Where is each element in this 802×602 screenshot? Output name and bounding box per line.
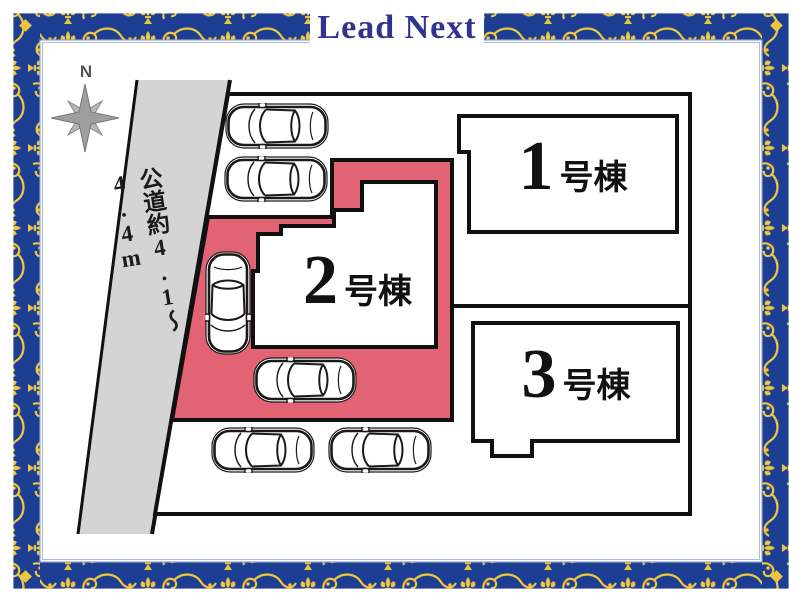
building-3-number: 3: [522, 340, 557, 410]
car-icon: [205, 252, 252, 354]
building-3-suffix: 号棟: [563, 370, 631, 404]
car-icon: [226, 103, 328, 150]
car-icon: [212, 427, 314, 474]
brand-logo: Lead Next: [310, 5, 484, 50]
brand-logo-text: Lead Next: [317, 9, 476, 47]
building-2-suffix: 号棟: [344, 276, 412, 310]
car-icon: [254, 357, 356, 404]
building-3-label: 3 号棟: [473, 340, 679, 410]
compass-north-label: N: [74, 62, 98, 82]
building-1-label: 1 号棟: [464, 132, 682, 202]
car-icon: [225, 156, 327, 203]
building-1-number: 1: [519, 132, 554, 202]
car-icon: [329, 427, 431, 474]
building-2-number: 2: [303, 246, 338, 316]
compass-icon: [51, 84, 119, 152]
site-plan-page: Lead Next N 公道約4.1〜4.4m 1 号棟 2 号棟 3 号棟: [0, 0, 802, 602]
building-2-label: 2 号棟: [265, 246, 450, 316]
building-1-suffix: 号棟: [560, 162, 628, 196]
